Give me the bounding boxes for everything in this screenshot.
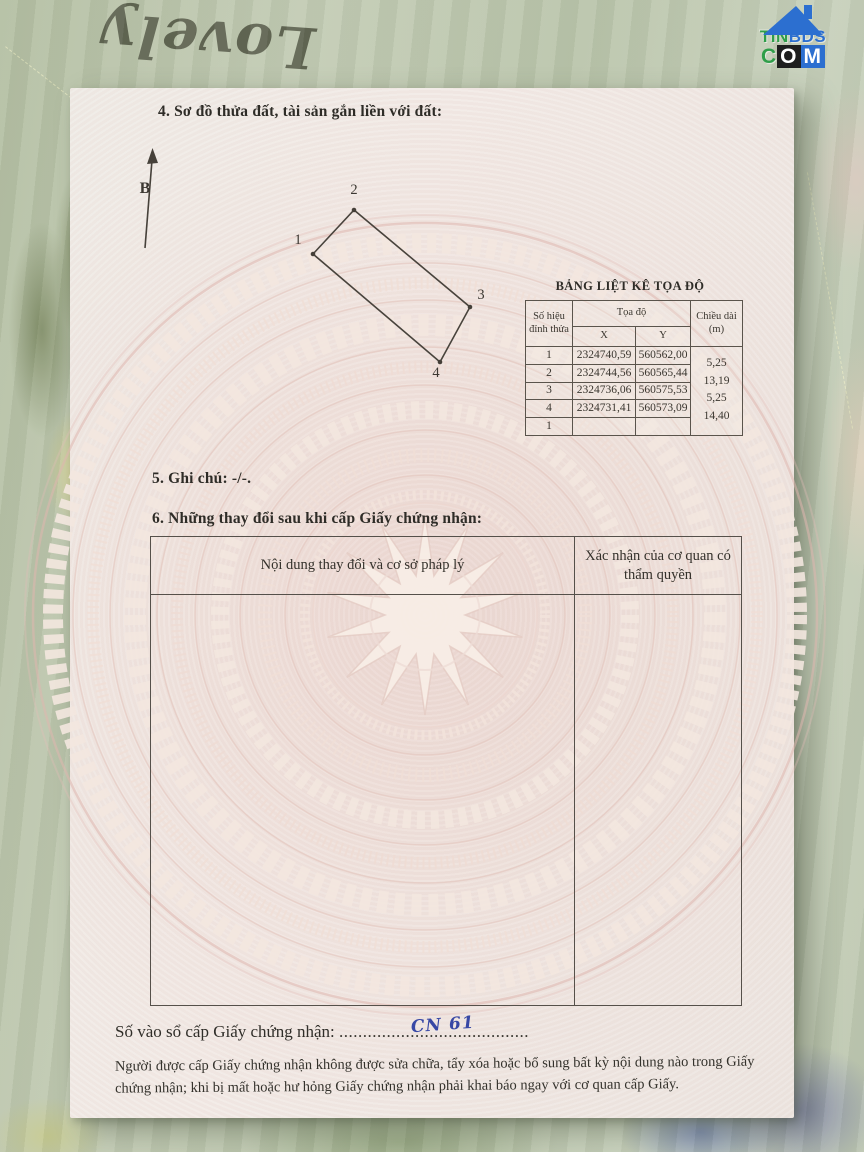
north-arrow-icon bbox=[138, 148, 162, 252]
vertex-label-2: 2 bbox=[347, 182, 361, 199]
changes-content-cell bbox=[151, 595, 575, 1005]
coord-length-cell: 5,25 13,19 5,25 14,40 bbox=[691, 347, 743, 436]
parcel-diagram bbox=[298, 191, 493, 381]
coord-row-y: 560575,53 bbox=[636, 383, 691, 401]
coord-row-id: 3 bbox=[526, 383, 573, 401]
certificate-page: 4. Sơ đồ thửa đất, tài sản gắn liền với … bbox=[70, 88, 794, 1118]
coord-row-y: 560565,44 bbox=[636, 365, 691, 383]
changes-col-content-header: Nội dung thay đổi và cơ sở pháp lý bbox=[151, 537, 575, 594]
section5-note: 5. Ghi chú: -/-. bbox=[152, 470, 251, 488]
length-value: 14,40 bbox=[691, 410, 742, 423]
coord-row-id: 1 bbox=[526, 418, 573, 436]
coord-row-id: 2 bbox=[526, 365, 573, 383]
coord-header-x: X bbox=[573, 327, 636, 347]
north-label: B bbox=[134, 180, 156, 198]
length-value: 5,25 bbox=[691, 392, 742, 405]
vertex-label-4: 4 bbox=[429, 365, 443, 382]
vertex-label-3: 3 bbox=[474, 287, 488, 304]
serial-label: Số vào sổ cấp Giấy chứng nhận: bbox=[115, 1022, 335, 1041]
coord-header-length: Chiều dài (m) bbox=[691, 301, 743, 347]
coord-row-id: 4 bbox=[526, 400, 573, 418]
coord-row-y: 560562,00 bbox=[636, 347, 691, 365]
vertex-label-1: 1 bbox=[291, 232, 305, 249]
footer-note: Người được cấp Giấy chứng nhận không đượ… bbox=[115, 1051, 781, 1100]
logo-m: M bbox=[801, 45, 826, 68]
coord-header-vertex: Số hiệu đỉnh thửa bbox=[526, 301, 573, 347]
changes-table-header: Nội dung thay đổi và cơ sở pháp lý Xác n… bbox=[151, 537, 741, 595]
changes-table-body bbox=[151, 595, 741, 1005]
coord-row-y: 560573,09 bbox=[636, 400, 691, 418]
house-roof-icon bbox=[763, 6, 823, 35]
length-value: 5,25 bbox=[691, 357, 742, 370]
coord-row-x bbox=[573, 418, 636, 436]
changes-table: Nội dung thay đổi và cơ sở pháp lý Xác n… bbox=[150, 536, 742, 1006]
coord-row-y bbox=[636, 418, 691, 436]
coord-header-coords: Tọa độ bbox=[573, 301, 691, 327]
coord-row-x: 2324740,59 bbox=[573, 347, 636, 365]
logo-line2: COM bbox=[751, 46, 835, 67]
fabric-handwriting: Lovely bbox=[75, 0, 342, 101]
coord-row-x: 2324736,06 bbox=[573, 383, 636, 401]
tinbds-logo: TINBDS COM bbox=[751, 6, 835, 67]
coord-table-title: BẢNG LIỆT KÊ TỌA ĐỘ bbox=[508, 279, 752, 294]
coord-row-x: 2324744,56 bbox=[573, 365, 636, 383]
section6-title: 6. Những thay đổi sau khi cấp Giấy chứng… bbox=[152, 510, 482, 528]
coord-row-id: 1 bbox=[526, 347, 573, 365]
serial-line: Số vào sổ cấp Giấy chứng nhận: .........… bbox=[115, 1022, 529, 1042]
changes-confirm-cell bbox=[575, 595, 741, 1005]
logo-o: O bbox=[777, 45, 800, 68]
photo-scene: Lovely TINBDS COM 4. bbox=[0, 0, 864, 1152]
coord-header-y: Y bbox=[636, 327, 691, 347]
coord-row-x: 2324731,41 bbox=[573, 400, 636, 418]
section4-title: 4. Sơ đồ thửa đất, tài sản gắn liền với … bbox=[158, 103, 442, 121]
logo-c: C bbox=[761, 45, 777, 68]
changes-col-confirm-header: Xác nhận của cơ quan có thẩm quyền bbox=[575, 537, 741, 594]
coord-table: Số hiệu đỉnh thửa Tọa độ Chiều dài (m) X… bbox=[525, 300, 743, 436]
length-value: 13,19 bbox=[691, 375, 742, 388]
